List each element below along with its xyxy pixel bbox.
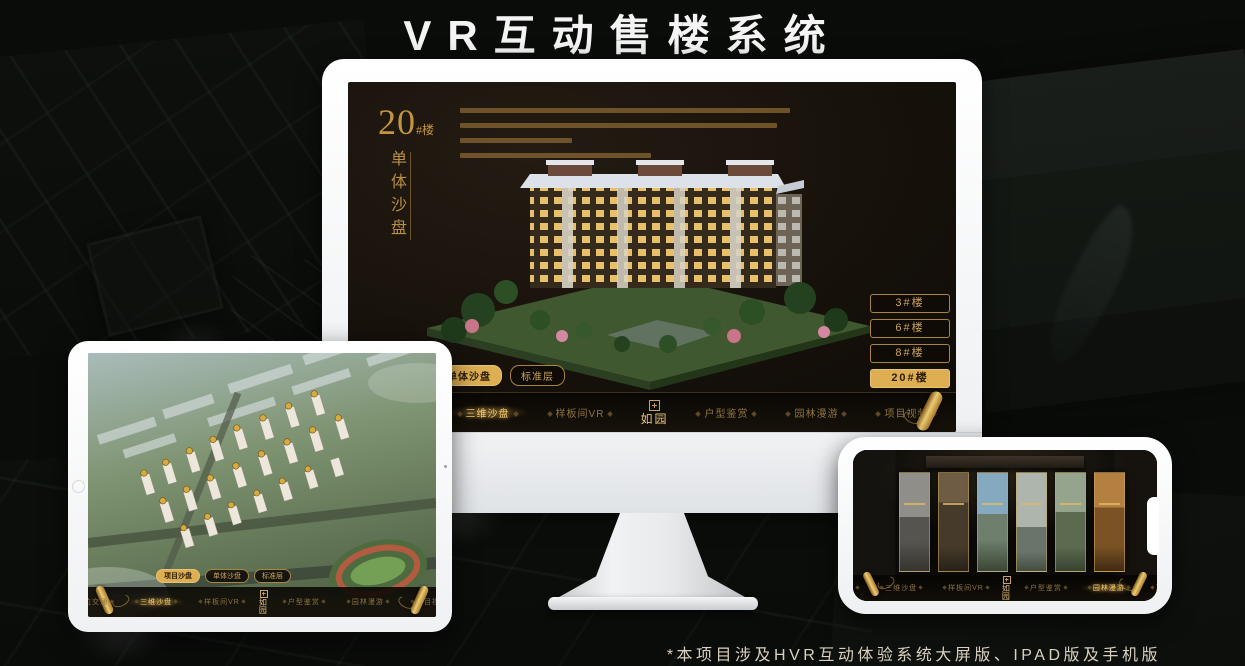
nav-item-3d-sandtable[interactable]: 三维沙盘 [448, 405, 528, 420]
floor-button-3[interactable]: 3#楼 [870, 294, 950, 313]
phone-nav-3d-sandtable[interactable]: 三维沙盘 [872, 583, 930, 593]
tablet-nav-garden-roam[interactable]: 园林漫游 [339, 597, 397, 607]
tablet-tab-project-sandtable[interactable]: 项目沙盘 [156, 569, 200, 583]
tablet-tab-standard-floor[interactable]: 标准层 [254, 569, 291, 583]
phone-nav-location-traffic[interactable]: 区位交通 [853, 583, 867, 593]
phone-notch [1147, 497, 1159, 555]
nav-item-floorplans[interactable]: 户型鉴赏 [686, 405, 766, 420]
phone-navbar: 区位交通 三维沙盘 样板间VR 如园 户型鉴赏 园林漫游 项目视频 [853, 575, 1157, 601]
heading-rule [410, 152, 411, 240]
brand-logo: 如园 [1002, 576, 1012, 601]
tab-standard-floor[interactable]: 标准层 [510, 365, 565, 386]
gallery-panel-interior[interactable] [938, 472, 969, 572]
gate-lintel [926, 456, 1084, 468]
text-line [460, 123, 777, 128]
page-title: VR互动售楼系统 [0, 2, 1245, 63]
tablet-nav-location-traffic[interactable]: 区位交通 [88, 597, 121, 607]
tablet-device: 项目沙盘 单体沙盘 标准层 区位交通 三维沙盘 样板间VR 如园 户型鉴赏 园林… [68, 341, 452, 632]
gallery-panel-exterior[interactable] [977, 472, 1008, 572]
brand-seal-icon [1003, 576, 1011, 584]
floor-button-8[interactable]: 8#楼 [870, 344, 950, 363]
tablet-nav-floorplans[interactable]: 户型鉴赏 [275, 597, 333, 607]
brand-logo: 如园 [259, 590, 269, 615]
brand-logo-text: 如园 [640, 413, 668, 425]
floor-button-group: 3#楼 6#楼 8#楼 20#楼 [870, 294, 950, 388]
brand-logo-text: 如园 [1002, 585, 1012, 601]
tablet-home-button[interactable] [72, 480, 85, 493]
phone-nav-project-video[interactable]: 项目视频 [1143, 583, 1157, 593]
scene-gallery [899, 472, 1125, 572]
phone-nav-showroom-vr[interactable]: 样板间VR [935, 583, 997, 593]
tablet-nav-3d-sandtable[interactable]: 三维沙盘 [127, 597, 185, 607]
text-line [460, 108, 790, 113]
heading-subtitle-vertical: 单体沙盘 [384, 150, 408, 242]
nav-item-showroom-vr[interactable]: 样板间VR [538, 405, 623, 420]
footnote: *本项目涉及HVR互动体验系统大屏版、IPAD版及手机版 [667, 641, 1161, 665]
phone-device: 区位交通 三维沙盘 样板间VR 如园 户型鉴赏 园林漫游 项目视频 [838, 437, 1172, 614]
tablet-navbar: 区位交通 三维沙盘 样板间VR 如园 户型鉴赏 园林漫游 项目视频 [88, 587, 436, 617]
phone-nav-floorplans[interactable]: 户型鉴赏 [1017, 583, 1075, 593]
gallery-panel-garden[interactable] [1055, 472, 1086, 572]
gallery-panel-building[interactable] [1016, 472, 1047, 572]
brand-seal-icon [260, 590, 268, 598]
tablet-nav-showroom-vr[interactable]: 样板间VR [191, 597, 253, 607]
tablet-camera-dot [444, 465, 447, 468]
floor-button-6[interactable]: 6#楼 [870, 319, 950, 338]
brand-logo-text: 如园 [259, 599, 269, 615]
tablet-screen: 项目沙盘 单体沙盘 标准层 区位交通 三维沙盘 样板间VR 如园 户型鉴赏 园林… [88, 353, 436, 617]
brand-logo: 如园 [640, 400, 668, 425]
building-number: 20 [378, 102, 416, 142]
floor-button-20[interactable]: 20#楼 [870, 369, 950, 388]
brand-seal-icon [649, 400, 660, 411]
nav-item-garden-roam[interactable]: 园林漫游 [776, 405, 856, 420]
monitor-base [548, 597, 758, 610]
tablet-tab-group: 项目沙盘 单体沙盘 标准层 [156, 569, 291, 583]
phone-screen: 区位交通 三维沙盘 样板间VR 如园 户型鉴赏 园林漫游 项目视频 [853, 450, 1157, 601]
building-3d-model[interactable] [412, 130, 892, 400]
tablet-tab-single-sandtable[interactable]: 单体沙盘 [205, 569, 249, 583]
gallery-panel-courtyard[interactable] [899, 472, 930, 572]
page: VR互动售楼系统 20#楼 单体沙盘 [0, 0, 1245, 666]
gallery-panel-lounge[interactable] [1094, 472, 1125, 572]
